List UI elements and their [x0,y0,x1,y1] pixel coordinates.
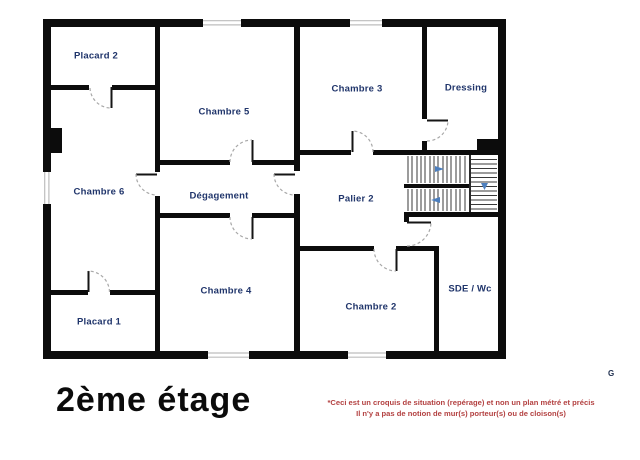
wall-segment [110,290,155,295]
disclaimer-line-2: Il n'y a pas de notion de mur(s) porteur… [300,408,622,419]
disclaimer-note: *Ceci est un croquis de situation (repér… [300,397,622,419]
door-palier-2 [274,174,295,195]
wall-segment [252,213,294,218]
room-label-chambre-3: Chambre 3 [332,84,383,95]
door-placard-1 [88,271,110,292]
door-chambre-5 [230,140,253,162]
window-icon [208,351,249,359]
floor-title: 2ème étage [56,381,251,420]
wall-segment [294,27,300,171]
wall-segment [160,213,230,218]
outer-wall-top [43,19,506,27]
wall-segment [155,196,160,351]
wall-segment [434,246,439,351]
room-label-chambre-5: Chambre 5 [199,107,250,118]
door-placard-2 [90,87,112,108]
wall-segment [404,212,498,217]
stair-mid-landing-wall [404,184,470,188]
door-chambre-2 [374,249,397,271]
room-label-placard-1: Placard 1 [77,317,121,328]
outer-wall-bottom [43,351,506,359]
stair-flight-divider [469,155,471,212]
wall-segment [300,150,351,155]
wall-segment [396,246,439,251]
outer-wall-right [498,19,506,359]
wall-segment [112,85,155,90]
wall-segment [155,27,160,172]
window-icon [350,19,382,27]
wall-segment [51,290,88,295]
room-label-dressing: Dressing [445,83,487,94]
wall-segment [404,212,409,222]
room-label-palier-2: Palier 2 [338,194,373,205]
wall-segment [294,194,300,351]
corner-mark: G [608,369,614,378]
window-icon [348,351,386,359]
window-icon [43,172,51,204]
stair-arrow-icon [431,197,440,203]
wall-segment [300,246,374,251]
wall-segment [252,160,294,165]
door-chambre-4 [230,217,253,239]
doors [88,87,448,292]
door-dressing [427,120,448,141]
window-icon [203,19,241,27]
door-chambre-3 [352,131,373,152]
room-label-sde-wc: SDE / Wc [448,284,491,295]
door-sde-wc [407,222,431,246]
chimney-block-left [50,128,62,153]
floor-plan-canvas: Placard 2 Chambre 5 Chambre 3 Dressing C… [0,0,640,460]
wall-segment [422,27,427,119]
room-label-chambre-2: Chambre 2 [346,302,397,313]
disclaimer-line-1: *Ceci est un croquis de situation (repér… [300,397,622,408]
staircase [404,155,497,212]
wall-segment [51,85,89,90]
solid-blocks [50,128,498,153]
room-label-degagement: Dégagement [189,191,248,202]
wall-segment [160,160,230,165]
room-label-chambre-6: Chambre 6 [74,187,125,198]
room-label-chambre-4: Chambre 4 [201,286,252,297]
room-label-placard-2: Placard 2 [74,51,118,62]
door-chambre-6 [136,174,157,195]
wall-segment [373,150,498,155]
